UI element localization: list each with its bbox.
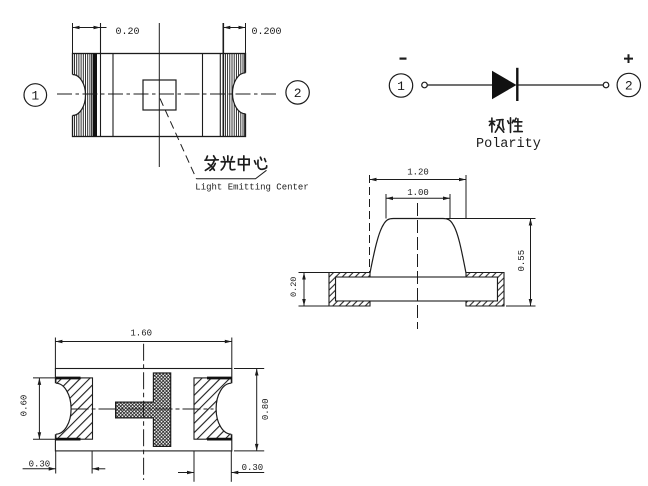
svg-text:0.55: 0.55 [517, 250, 527, 272]
svg-text:0.30: 0.30 [29, 459, 51, 469]
svg-text:0.200: 0.200 [252, 27, 282, 38]
svg-text:2: 2 [625, 79, 633, 94]
svg-text:Light Emitting Center: Light Emitting Center [195, 183, 308, 193]
svg-text:2: 2 [294, 86, 302, 101]
svg-text:0.30: 0.30 [242, 463, 264, 473]
svg-text:1: 1 [31, 89, 39, 104]
svg-text:1.00: 1.00 [407, 188, 429, 198]
svg-text:0.20: 0.20 [116, 27, 140, 38]
svg-text:0.80: 0.80 [261, 398, 271, 420]
svg-text:1: 1 [397, 79, 405, 94]
svg-text:1.60: 1.60 [130, 329, 152, 339]
svg-text:1.20: 1.20 [407, 168, 429, 178]
svg-text:0.60: 0.60 [20, 395, 30, 417]
svg-text:0.20: 0.20 [289, 277, 299, 297]
svg-text:Polarity: Polarity [476, 137, 541, 152]
